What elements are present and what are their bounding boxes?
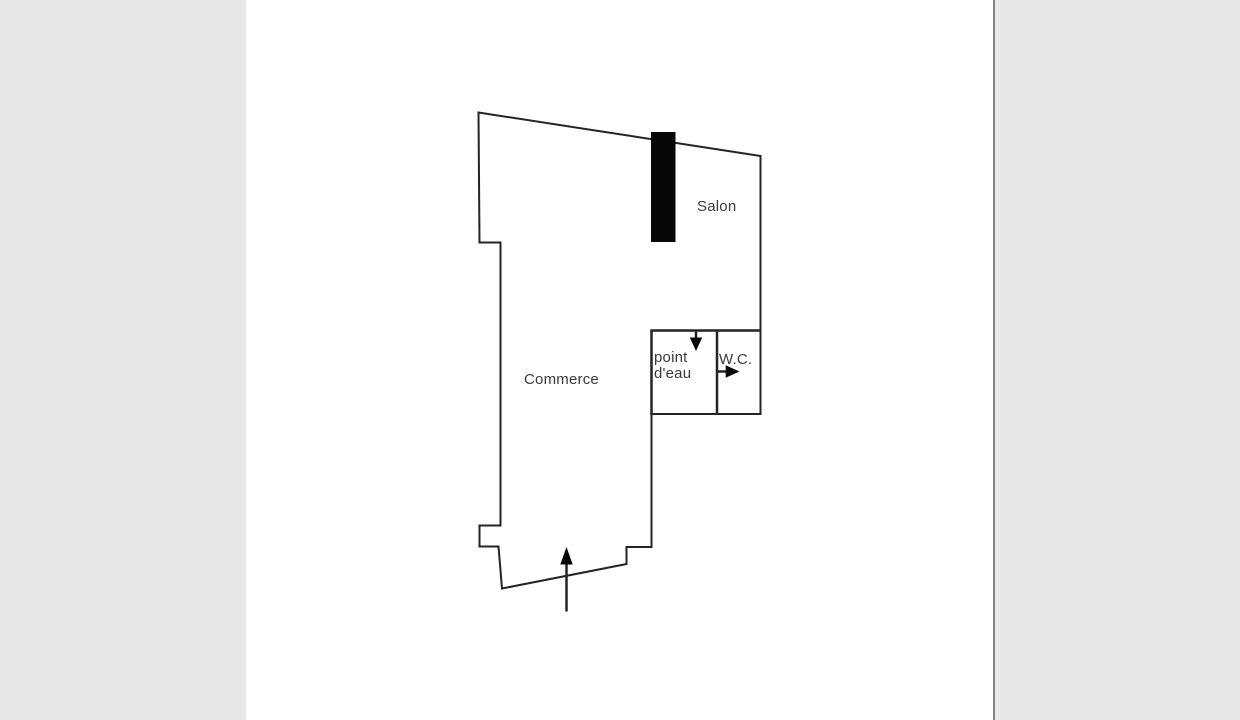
room-label-point-eau: pointd'eau [654,350,691,381]
room-label-commerce: Commerce [524,372,599,388]
floor-plan-drawing [0,0,1240,720]
dark-wall-segment-icon [651,132,676,242]
room-label-wc: W.C. [719,352,752,368]
room-label-point-eau-line1: point [654,349,688,366]
floor-plan-page: Salon Commerce pointd'eau W.C. [0,0,1240,720]
point-eau-arrow-down-icon [690,331,702,351]
entrance-arrow-up-icon [560,547,572,612]
room-label-point-eau-line2: d'eau [654,365,691,382]
room-label-salon: Salon [697,199,736,215]
floor-plan-image: Salon Commerce pointd'eau W.C. [0,0,1240,720]
